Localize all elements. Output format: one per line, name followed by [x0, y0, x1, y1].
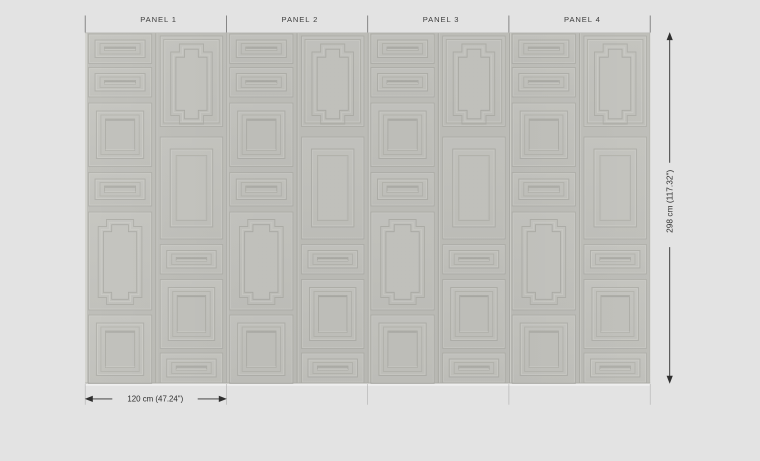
svg-text:PANEL 2: PANEL 2 — [282, 15, 319, 24]
svg-text:PANEL 1: PANEL 1 — [140, 15, 177, 24]
svg-text:PANEL 3: PANEL 3 — [423, 15, 460, 24]
svg-text:298 cm (117.32"): 298 cm (117.32") — [664, 170, 674, 233]
svg-text:PANEL 4: PANEL 4 — [564, 15, 601, 24]
svg-text:120 cm (47.24"): 120 cm (47.24") — [127, 394, 183, 403]
